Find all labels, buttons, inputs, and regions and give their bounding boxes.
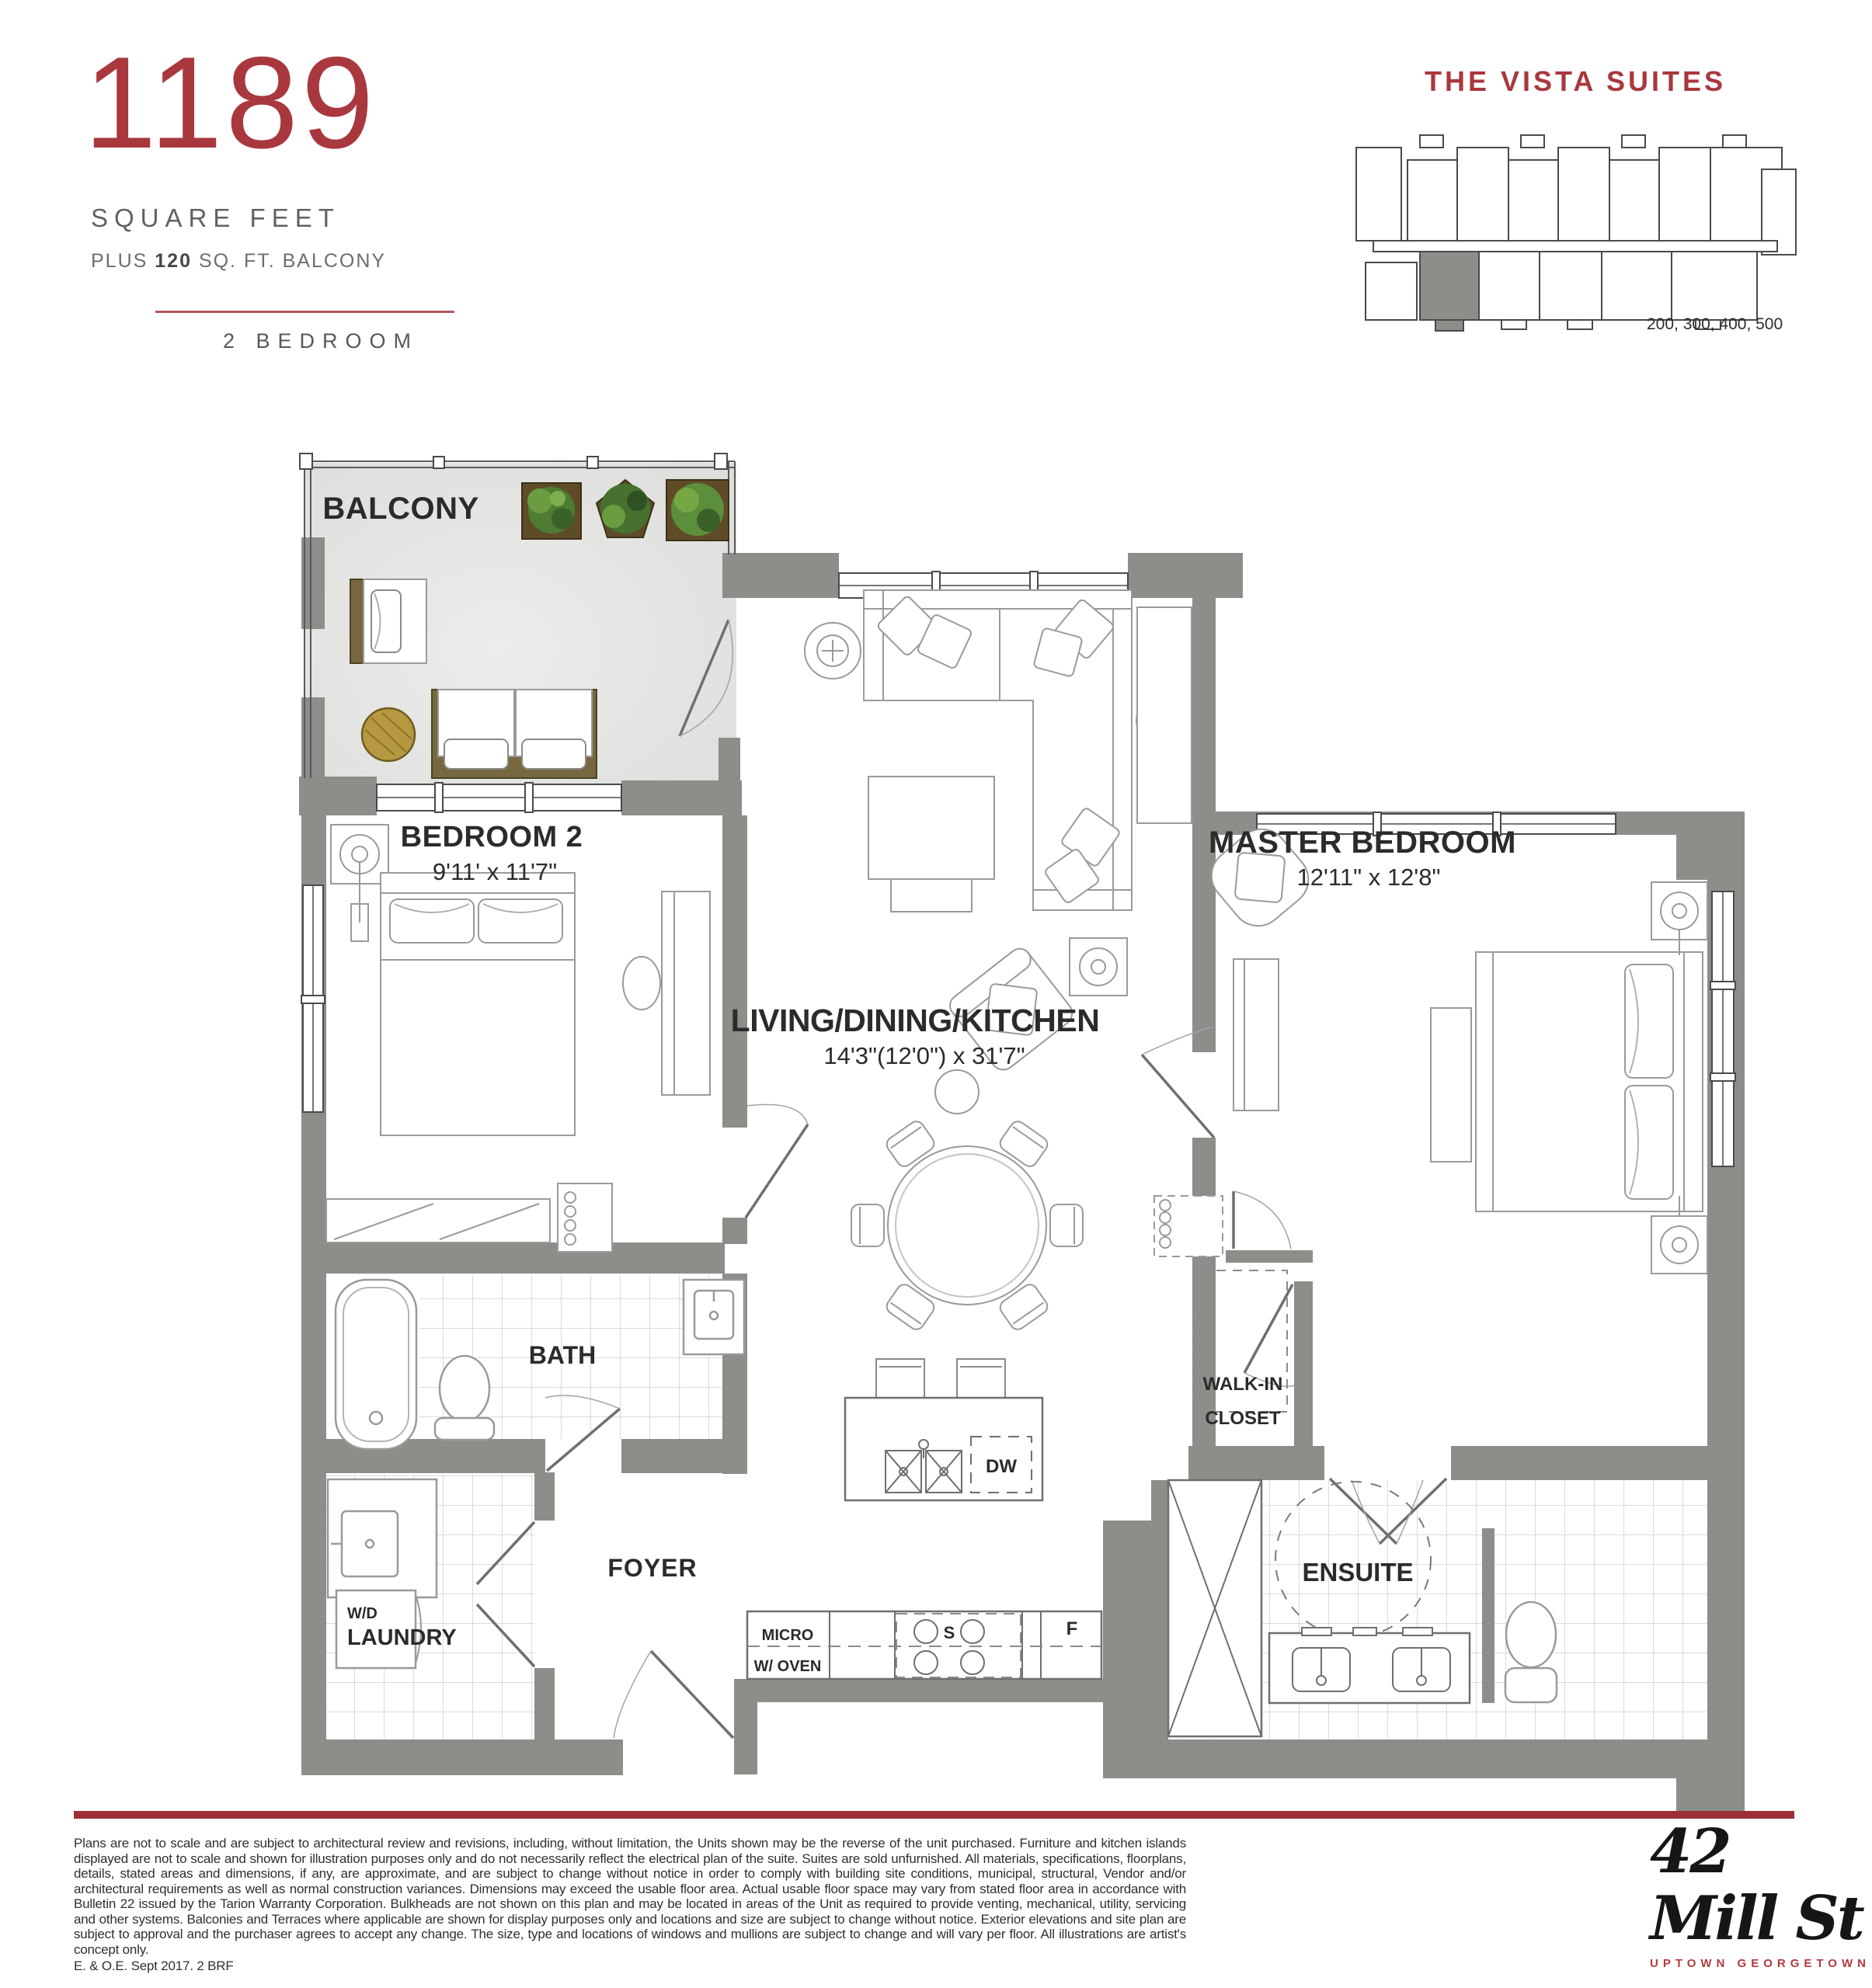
floorplan-sheet: 1189 SQUARE FEET PLUS 120 SQ. FT. BALCON… <box>0 0 1872 1988</box>
dishwasher-label: DW <box>986 1456 1017 1477</box>
dims-bedroom2: 9'11' x 11'7" <box>433 858 557 885</box>
disclaimer-body: Plans are not to scale and are subject t… <box>74 1836 1186 1957</box>
micro-label-2: W/ OVEN <box>754 1658 822 1675</box>
fridge-label: F <box>1066 1618 1078 1639</box>
kitchen-counter: S F MICRO W/ OVEN <box>747 1611 1101 1679</box>
balcony-armchair <box>350 579 426 663</box>
dims-master: 12'11" x 12'8" <box>1297 864 1441 891</box>
room-label-walkin-2: CLOSET <box>1205 1408 1281 1429</box>
room-label-bedroom2: BEDROOM 2 <box>401 821 583 853</box>
room-label-balcony: BALCONY <box>322 492 478 526</box>
room-label-bath: BATH <box>529 1341 597 1369</box>
logo-wordmark: 42 Mill St <box>1650 1819 1872 1952</box>
floorplan-drawing: DW S F MICRO W/ OVEN <box>0 0 1872 1988</box>
bedroom2-furniture <box>326 825 710 1252</box>
coffee-table <box>868 777 994 879</box>
dims-living: 14'3"(12'0") x 31'7" <box>823 1042 1025 1069</box>
ensuite-toilet <box>1506 1602 1556 1667</box>
eoe-line: E. & O.E. Sept 2017. 2 BRF <box>74 1958 1186 1974</box>
logo-subtitle: UPTOWN GEORGETOWN <box>1650 1957 1872 1970</box>
stove-label: S <box>944 1623 955 1642</box>
footer-red-bar <box>74 1811 1794 1819</box>
micro-label-1: MICRO <box>762 1627 814 1644</box>
room-label-living: LIVING/DINING/KITCHEN <box>731 1003 1100 1038</box>
bath-toilet <box>440 1356 489 1421</box>
room-label-walkin-1: WALK-IN <box>1203 1374 1283 1395</box>
balcony-plants-icon <box>522 480 729 540</box>
console <box>1137 607 1192 823</box>
disclaimer-text: Plans are not to scale and are subject t… <box>74 1836 1186 1974</box>
dining-set <box>851 1118 1083 1332</box>
room-label-laundry: LAUNDRY <box>347 1625 457 1650</box>
kitchen-island: DW <box>845 1359 1042 1500</box>
room-label-ensuite: ENSUITE <box>1302 1558 1413 1587</box>
room-label-foyer: FOYER <box>607 1554 697 1582</box>
room-label-wd: W/D <box>347 1605 378 1622</box>
room-label-master: MASTER BEDROOM <box>1209 825 1516 860</box>
developer-logo: 42 Mill St UPTOWN GEORGETOWN <box>1650 1819 1872 1970</box>
balcony-loveseat <box>432 690 597 778</box>
